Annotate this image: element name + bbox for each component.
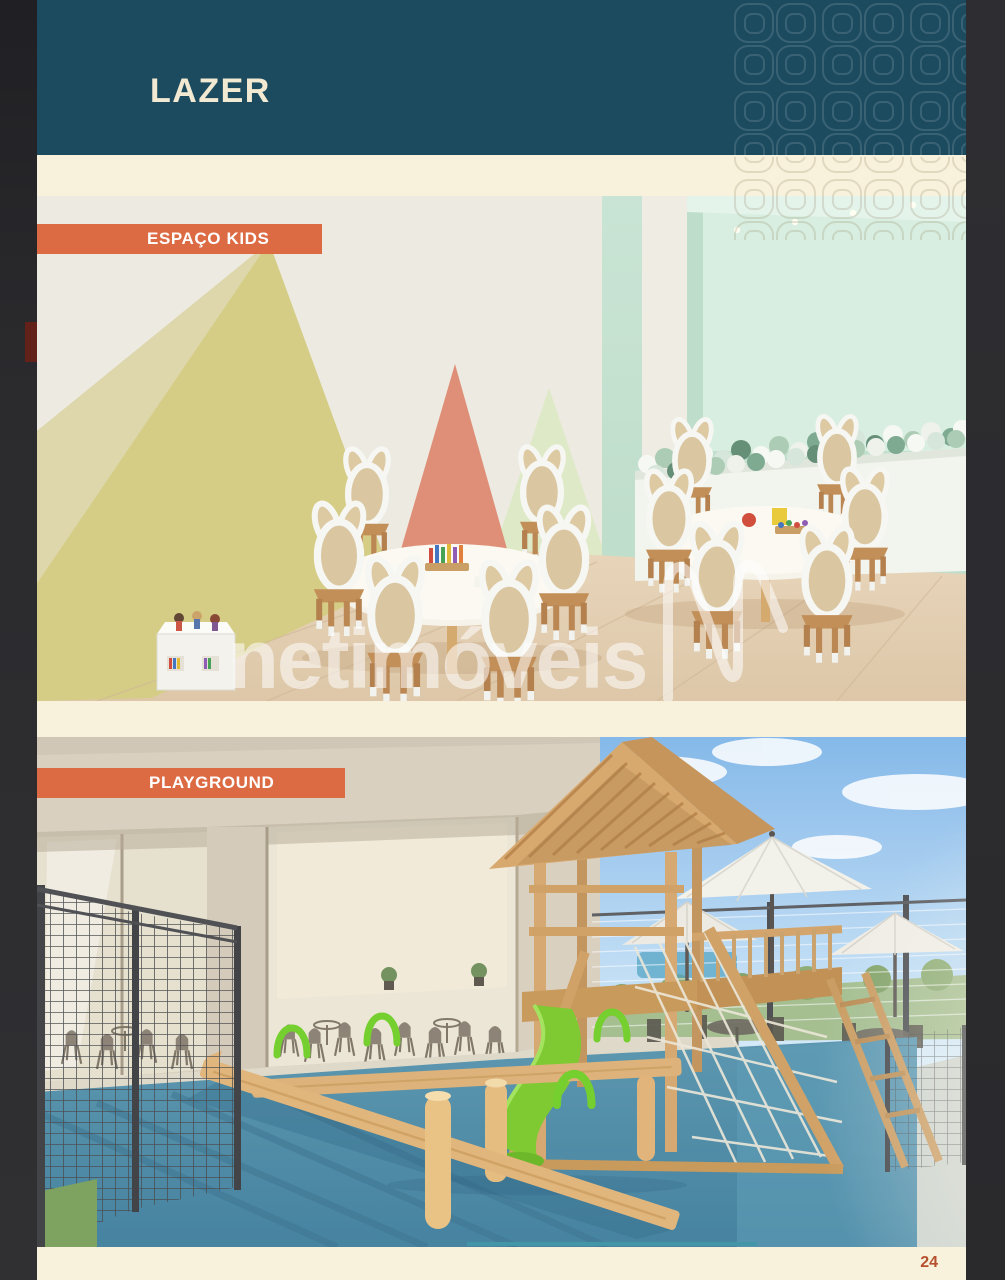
left-dark-margin: [0, 0, 37, 1280]
playground-illustration: [37, 737, 966, 1247]
page-footer: 24: [37, 1247, 966, 1280]
document-page: LAZER: [37, 0, 966, 1280]
partial-red-element: [25, 322, 37, 362]
section-label-espaco-kids: ESPAÇO KIDS: [37, 224, 322, 254]
right-dark-margin: [966, 0, 1005, 1280]
page-number: 24: [920, 1254, 938, 1272]
brochure-page-view: LAZER: [0, 0, 1005, 1280]
header-band: LAZER: [37, 0, 966, 155]
playground-render: PLAYGROUND: [37, 737, 966, 1247]
espaco-kids-render: netimóveis ESPAÇO KIDS: [37, 196, 966, 701]
section-label-playground: PLAYGROUND: [37, 768, 345, 798]
section-label-text: PLAYGROUND: [149, 773, 274, 793]
section-label-text: ESPAÇO KIDS: [147, 229, 269, 249]
watermark-text: netimóveis: [228, 612, 647, 701]
page-title: LAZER: [150, 72, 271, 111]
kids-room-illustration: netimóveis: [37, 196, 966, 701]
